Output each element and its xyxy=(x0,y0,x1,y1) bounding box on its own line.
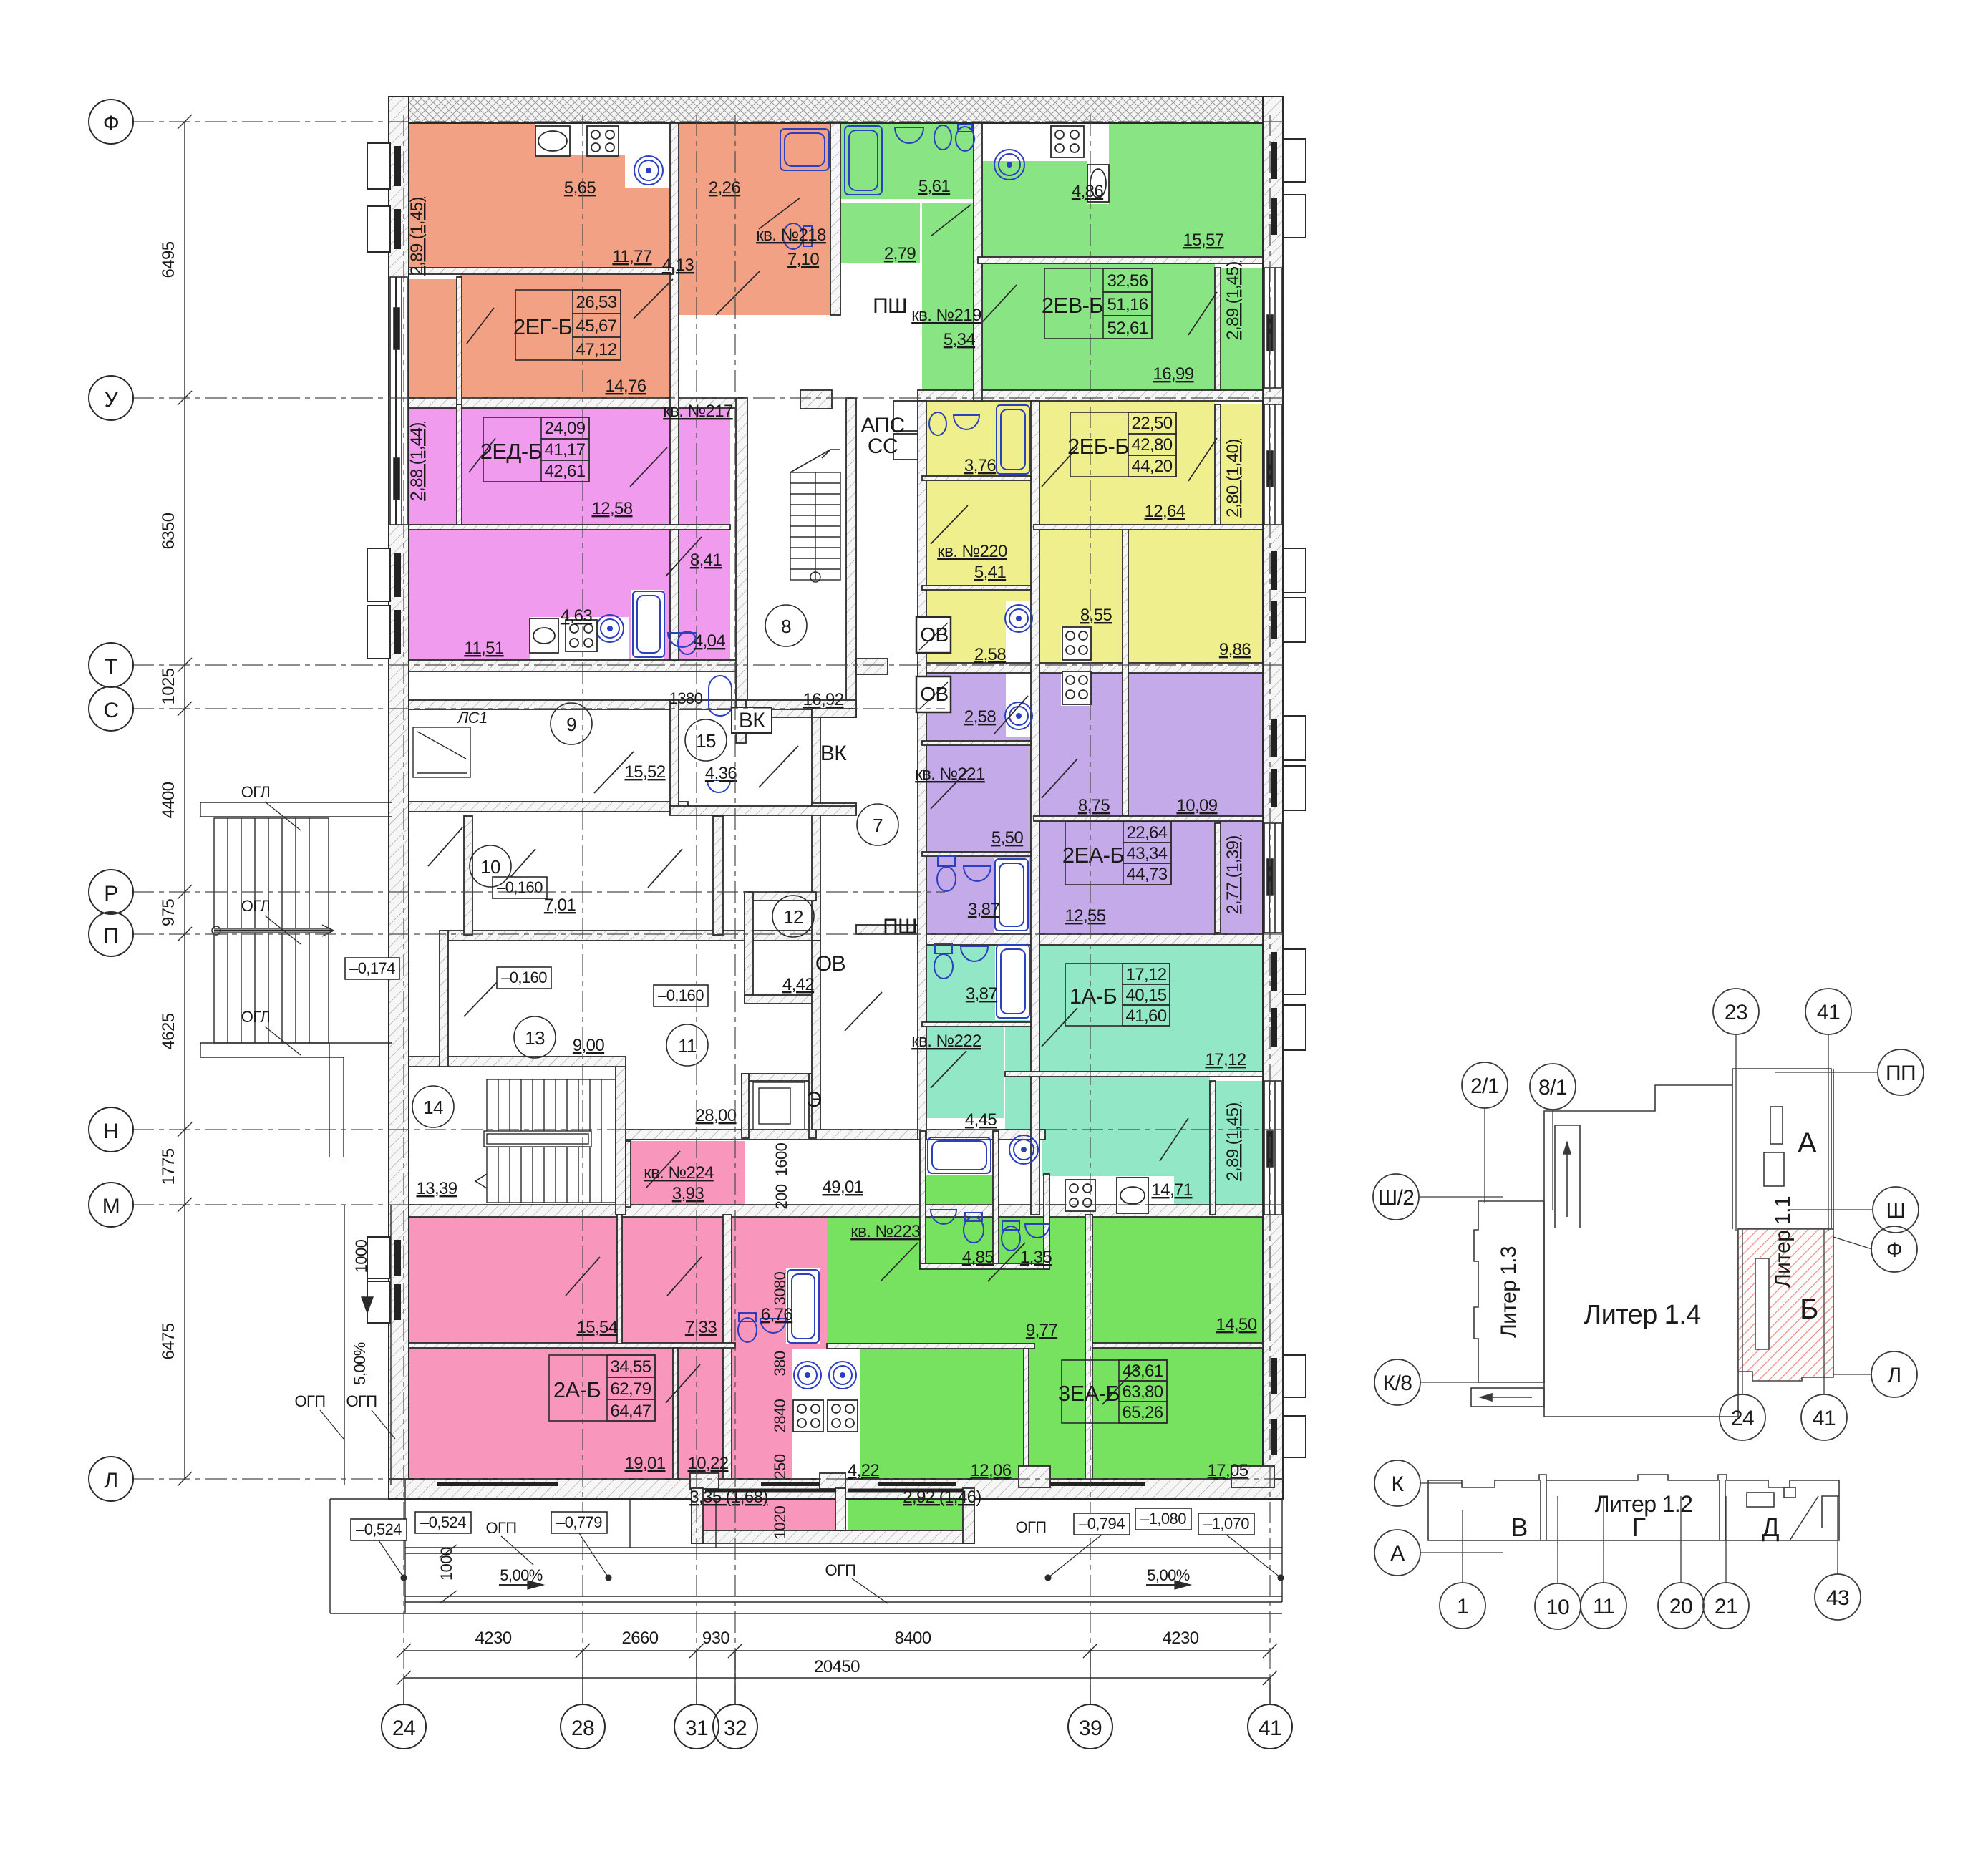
svg-text:Ф: Ф xyxy=(103,112,119,135)
svg-text:–0,174: –0,174 xyxy=(349,959,395,977)
svg-text:Р: Р xyxy=(104,882,117,906)
svg-text:кв. №219: кв. №219 xyxy=(911,306,981,325)
svg-text:А: А xyxy=(1798,1127,1817,1159)
svg-text:ОВ: ОВ xyxy=(815,952,845,976)
svg-text:7,01: 7,01 xyxy=(544,896,576,915)
svg-text:9: 9 xyxy=(566,714,576,735)
svg-text:кв. №223: кв. №223 xyxy=(850,1222,921,1241)
svg-text:41: 41 xyxy=(1813,1407,1836,1430)
svg-text:14,71: 14,71 xyxy=(1151,1180,1192,1200)
svg-text:ОГЛ: ОГЛ xyxy=(241,783,270,801)
svg-text:41: 41 xyxy=(1259,1717,1281,1740)
svg-text:1775: 1775 xyxy=(159,1148,178,1185)
svg-text:кв. №217: кв. №217 xyxy=(663,402,733,421)
svg-text:44,73: 44,73 xyxy=(1126,865,1167,884)
svg-text:64,47: 64,47 xyxy=(610,1402,651,1421)
svg-text:Л: Л xyxy=(1887,1364,1901,1387)
svg-text:51,16: 51,16 xyxy=(1107,295,1148,314)
svg-text:7: 7 xyxy=(873,815,883,836)
svg-text:5,41: 5,41 xyxy=(974,563,1007,582)
svg-text:4,45: 4,45 xyxy=(965,1110,997,1130)
svg-text:П: П xyxy=(104,924,119,948)
svg-text:2660: 2660 xyxy=(622,1629,659,1648)
svg-text:9,00: 9,00 xyxy=(573,1036,605,1055)
svg-text:43,34: 43,34 xyxy=(1126,844,1167,863)
svg-text:4,13: 4,13 xyxy=(662,256,694,275)
svg-text:8/1: 8/1 xyxy=(1538,1076,1567,1100)
svg-text:кв. №218: кв. №218 xyxy=(756,225,826,245)
svg-text:1020: 1020 xyxy=(771,1505,789,1539)
svg-text:12,55: 12,55 xyxy=(1065,906,1105,926)
svg-text:5,00%: 5,00% xyxy=(351,1342,369,1384)
svg-text:–0,160: –0,160 xyxy=(497,878,543,896)
svg-text:43: 43 xyxy=(1826,1586,1849,1610)
svg-text:1000: 1000 xyxy=(352,1239,370,1273)
svg-text:65,26: 65,26 xyxy=(1122,1403,1163,1422)
svg-text:Г: Г xyxy=(1632,1513,1646,1542)
svg-text:3,76: 3,76 xyxy=(964,456,997,475)
svg-text:12: 12 xyxy=(783,906,803,928)
svg-text:8400: 8400 xyxy=(895,1629,931,1648)
svg-text:В: В xyxy=(1511,1513,1527,1542)
svg-text:11,51: 11,51 xyxy=(464,639,504,658)
svg-text:Ш/2: Ш/2 xyxy=(1378,1186,1415,1210)
svg-text:7,10: 7,10 xyxy=(787,250,820,269)
svg-text:14,76: 14,76 xyxy=(605,377,646,396)
svg-text:ВК: ВК xyxy=(739,709,765,732)
svg-text:2ЕБ-Б: 2ЕБ-Б xyxy=(1067,434,1129,459)
svg-text:6,76: 6,76 xyxy=(761,1305,793,1324)
svg-text:1600: 1600 xyxy=(772,1142,790,1176)
svg-text:8,41: 8,41 xyxy=(690,550,722,570)
svg-text:47,12: 47,12 xyxy=(576,340,616,359)
svg-text:17,12: 17,12 xyxy=(1125,965,1166,984)
svg-text:4,22: 4,22 xyxy=(848,1461,880,1480)
svg-text:41,17: 41,17 xyxy=(544,440,585,460)
svg-text:2ЕД-Б: 2ЕД-Б xyxy=(480,439,543,464)
svg-text:14,50: 14,50 xyxy=(1216,1315,1256,1334)
svg-text:2840: 2840 xyxy=(771,1399,789,1432)
svg-text:2ЕВ-Б: 2ЕВ-Б xyxy=(1042,293,1103,318)
svg-text:2,92 (1,46): 2,92 (1,46) xyxy=(903,1487,981,1507)
svg-text:ВК: ВК xyxy=(820,742,847,765)
svg-text:11,77: 11,77 xyxy=(612,247,652,266)
svg-text:1025: 1025 xyxy=(159,668,178,704)
svg-text:10: 10 xyxy=(1546,1596,1569,1619)
svg-text:16,99: 16,99 xyxy=(1153,364,1193,384)
svg-text:13,39: 13,39 xyxy=(416,1179,457,1198)
svg-text:С: С xyxy=(103,699,118,722)
svg-text:5,61: 5,61 xyxy=(918,177,951,196)
svg-text:52,61: 52,61 xyxy=(1107,319,1148,338)
svg-text:–0,160: –0,160 xyxy=(501,969,547,986)
svg-text:ОГЛ: ОГЛ xyxy=(241,1008,270,1026)
svg-text:13: 13 xyxy=(525,1027,545,1049)
svg-text:11: 11 xyxy=(1593,1595,1614,1618)
svg-text:6475: 6475 xyxy=(159,1323,178,1359)
svg-text:ПШ: ПШ xyxy=(883,915,917,938)
svg-text:28: 28 xyxy=(571,1717,594,1740)
svg-text:Л: Л xyxy=(104,1469,117,1493)
svg-text:Д: Д xyxy=(1762,1513,1779,1542)
svg-text:Литер 1.4: Литер 1.4 xyxy=(1584,1300,1701,1330)
svg-text:2,89 (1,45): 2,89 (1,45) xyxy=(1223,261,1243,339)
svg-text:19,01: 19,01 xyxy=(624,1454,665,1473)
svg-text:Б: Б xyxy=(1800,1294,1818,1325)
svg-text:22,50: 22,50 xyxy=(1131,414,1172,433)
svg-text:3080: 3080 xyxy=(771,1271,789,1305)
svg-text:44,20: 44,20 xyxy=(1131,457,1172,476)
svg-text:9,86: 9,86 xyxy=(1219,640,1251,659)
svg-text:930: 930 xyxy=(702,1629,729,1648)
svg-text:6495: 6495 xyxy=(159,241,178,278)
svg-text:Ш: Ш xyxy=(1886,1199,1906,1223)
svg-text:М: М xyxy=(102,1195,120,1218)
svg-text:–0,779: –0,779 xyxy=(556,1513,602,1531)
svg-text:4625: 4625 xyxy=(159,1013,178,1049)
svg-text:11: 11 xyxy=(678,1035,697,1057)
svg-text:Ф: Ф xyxy=(1886,1238,1902,1262)
svg-text:45,67: 45,67 xyxy=(576,316,616,336)
svg-text:А: А xyxy=(1390,1542,1405,1566)
svg-text:10: 10 xyxy=(480,856,500,878)
svg-text:Н: Н xyxy=(103,1120,118,1143)
svg-text:Т: Т xyxy=(105,655,117,679)
svg-text:1380: 1380 xyxy=(669,689,703,707)
svg-text:10,22: 10,22 xyxy=(687,1454,728,1473)
svg-text:кв. №220: кв. №220 xyxy=(937,542,1007,561)
svg-text:10,09: 10,09 xyxy=(1176,796,1217,815)
svg-text:24,09: 24,09 xyxy=(544,419,585,438)
svg-text:24: 24 xyxy=(392,1717,415,1740)
svg-text:–0,794: –0,794 xyxy=(1079,1515,1125,1533)
svg-text:41: 41 xyxy=(1817,1001,1840,1024)
svg-text:ОВ: ОВ xyxy=(920,623,948,646)
svg-text:К/8: К/8 xyxy=(1383,1372,1412,1395)
svg-text:42,61: 42,61 xyxy=(544,462,585,481)
svg-text:Литер 1.1: Литер 1.1 xyxy=(1771,1196,1795,1288)
svg-text:3,93: 3,93 xyxy=(672,1184,704,1203)
svg-text:17,05: 17,05 xyxy=(1207,1461,1248,1480)
svg-text:2,89 (1,45): 2,89 (1,45) xyxy=(407,197,427,275)
svg-text:5,34: 5,34 xyxy=(944,330,976,349)
svg-text:кв. №221: кв. №221 xyxy=(915,765,985,784)
svg-text:22,64: 22,64 xyxy=(1126,823,1167,843)
svg-text:28,00: 28,00 xyxy=(695,1106,736,1125)
svg-text:34,55: 34,55 xyxy=(610,1357,651,1377)
svg-text:К: К xyxy=(1392,1472,1405,1496)
svg-text:15,57: 15,57 xyxy=(1183,230,1223,250)
svg-text:975: 975 xyxy=(159,899,178,926)
svg-text:3,87: 3,87 xyxy=(968,900,1000,919)
svg-text:15: 15 xyxy=(696,730,716,752)
svg-text:63,80: 63,80 xyxy=(1122,1382,1163,1402)
svg-text:1,35: 1,35 xyxy=(1020,1248,1052,1267)
svg-text:26,53: 26,53 xyxy=(576,293,616,312)
svg-text:39: 39 xyxy=(1079,1717,1102,1740)
svg-text:кв. №224: кв. №224 xyxy=(644,1163,714,1183)
svg-text:2,88 (1,44): 2,88 (1,44) xyxy=(407,422,427,500)
svg-text:8,55: 8,55 xyxy=(1080,606,1112,625)
svg-text:4,04: 4,04 xyxy=(694,631,726,651)
svg-text:40,15: 40,15 xyxy=(1125,986,1166,1005)
svg-text:2ЕГ-Б: 2ЕГ-Б xyxy=(513,314,572,339)
svg-text:32: 32 xyxy=(724,1717,747,1740)
svg-text:2,79: 2,79 xyxy=(884,244,916,263)
svg-text:4,36: 4,36 xyxy=(705,764,737,783)
svg-text:ОГП: ОГП xyxy=(1015,1518,1046,1536)
svg-text:4,85: 4,85 xyxy=(962,1248,994,1267)
svg-text:20450: 20450 xyxy=(814,1657,860,1676)
svg-text:6350: 6350 xyxy=(159,513,178,549)
svg-text:14: 14 xyxy=(423,1097,443,1118)
svg-text:2,77 (1,39): 2,77 (1,39) xyxy=(1223,835,1243,913)
svg-text:42,80: 42,80 xyxy=(1131,435,1172,455)
svg-text:3ЕА-Б: 3ЕА-Б xyxy=(1058,1381,1120,1406)
svg-text:–0,524: –0,524 xyxy=(356,1520,402,1538)
svg-text:20: 20 xyxy=(1669,1595,1692,1618)
svg-text:Э: Э xyxy=(807,1088,822,1112)
svg-text:СС: СС xyxy=(868,435,898,458)
svg-text:2,89 (1,45): 2,89 (1,45) xyxy=(1223,1102,1243,1180)
svg-text:2/1: 2/1 xyxy=(1470,1074,1499,1098)
svg-text:23: 23 xyxy=(1725,1001,1747,1024)
svg-text:7,33: 7,33 xyxy=(685,1318,717,1337)
svg-text:ПП: ПП xyxy=(1886,1062,1916,1085)
svg-text:У: У xyxy=(105,388,119,412)
svg-text:4230: 4230 xyxy=(1163,1629,1199,1648)
svg-text:1: 1 xyxy=(1457,1595,1468,1618)
svg-text:–0,524: –0,524 xyxy=(420,1513,466,1531)
svg-text:8,75: 8,75 xyxy=(1078,796,1110,815)
svg-text:ОГП: ОГП xyxy=(346,1392,377,1410)
svg-text:ОГП: ОГП xyxy=(825,1561,855,1579)
svg-text:16,92: 16,92 xyxy=(803,690,843,709)
svg-text:41,60: 41,60 xyxy=(1125,1006,1166,1026)
svg-text:5,65: 5,65 xyxy=(564,178,596,198)
svg-text:ОГП: ОГП xyxy=(294,1392,325,1410)
svg-text:ОВ: ОВ xyxy=(920,683,948,705)
svg-text:ЛС1: ЛС1 xyxy=(456,709,487,727)
svg-text:49,01: 49,01 xyxy=(822,1178,863,1197)
svg-text:2,58: 2,58 xyxy=(974,645,1007,664)
svg-text:43,61: 43,61 xyxy=(1122,1362,1163,1381)
svg-text:кв. №222: кв. №222 xyxy=(911,1032,981,1051)
svg-text:3,87: 3,87 xyxy=(966,984,998,1004)
svg-text:21: 21 xyxy=(1715,1595,1737,1618)
svg-text:4,42: 4,42 xyxy=(782,975,815,994)
svg-text:24: 24 xyxy=(1731,1407,1754,1430)
svg-text:4,63: 4,63 xyxy=(561,606,593,626)
svg-text:ОГЛ: ОГЛ xyxy=(241,897,270,915)
svg-text:2,26: 2,26 xyxy=(709,178,741,198)
svg-text:ПШ: ПШ xyxy=(873,294,907,318)
svg-text:1А-Б: 1А-Б xyxy=(1070,984,1117,1009)
svg-text:5,00%: 5,00% xyxy=(500,1566,542,1584)
svg-text:ОГП: ОГП xyxy=(485,1519,516,1537)
svg-text:2ЕА-Б: 2ЕА-Б xyxy=(1062,843,1124,868)
svg-text:200: 200 xyxy=(772,1184,790,1209)
svg-text:Литер 1.3: Литер 1.3 xyxy=(1497,1246,1521,1338)
svg-text:4230: 4230 xyxy=(475,1629,512,1648)
svg-text:–1,080: –1,080 xyxy=(1140,1510,1186,1528)
svg-text:12,64: 12,64 xyxy=(1144,502,1185,521)
svg-text:250: 250 xyxy=(771,1454,789,1479)
svg-text:4,86: 4,86 xyxy=(1072,182,1104,201)
svg-text:9,77: 9,77 xyxy=(1026,1321,1058,1340)
svg-text:8: 8 xyxy=(781,616,791,637)
svg-text:32,56: 32,56 xyxy=(1107,271,1148,291)
svg-text:4400: 4400 xyxy=(159,782,178,818)
svg-text:17,12: 17,12 xyxy=(1205,1050,1246,1069)
svg-text:15,52: 15,52 xyxy=(624,762,665,782)
svg-text:–1,070: –1,070 xyxy=(1203,1515,1249,1533)
svg-text:12,06: 12,06 xyxy=(970,1461,1011,1480)
svg-text:5,00%: 5,00% xyxy=(1147,1566,1189,1584)
svg-text:5,50: 5,50 xyxy=(991,828,1024,848)
svg-text:62,79: 62,79 xyxy=(610,1379,651,1399)
svg-text:12,58: 12,58 xyxy=(591,499,632,518)
svg-text:3,35 (1,68): 3,35 (1,68) xyxy=(689,1487,767,1507)
svg-text:2,80 (1,40): 2,80 (1,40) xyxy=(1223,439,1243,517)
svg-text:2А-Б: 2А-Б xyxy=(553,1377,601,1402)
svg-text:2,58: 2,58 xyxy=(964,707,997,727)
svg-text:31: 31 xyxy=(685,1717,708,1740)
svg-text:380: 380 xyxy=(771,1351,789,1376)
